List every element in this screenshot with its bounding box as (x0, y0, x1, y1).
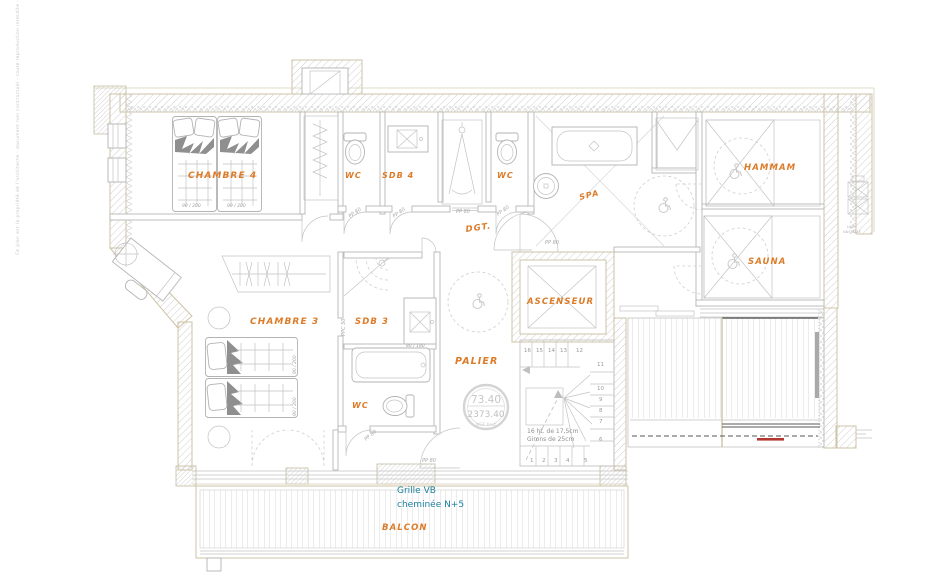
stair-number: 7 (599, 419, 603, 425)
lave-vaisselle-label-1: LAVE (847, 225, 856, 229)
bed-dim-label: 90 / 200 (292, 355, 298, 374)
door-label-pp80: PP 80 (456, 209, 470, 215)
bed-dim-label: 90 / 200 (227, 203, 246, 209)
sdb4-washbasin (388, 126, 428, 152)
door-label-ppc50: PPC 50 (341, 319, 347, 336)
annotation-line-2: cheminée N+5 (397, 499, 464, 510)
stair-number: 3 (554, 458, 558, 464)
room-label-wc3: WC (352, 401, 369, 410)
stair-number: 10 (597, 386, 604, 392)
room-label-chambre4: CHAMBRE 4 (188, 171, 257, 181)
stair-note-2: Girons de 25cm (527, 436, 574, 443)
floor-plan-page: Ce plan est la propriété de l'architecte… (0, 0, 940, 588)
room-label-sdb3: SDB 3 (355, 317, 389, 327)
room-label-balcon: BALCON (382, 523, 428, 533)
lave-vaisselle-label-2: VAISSELLE (843, 230, 861, 234)
toilet-wc3 (383, 395, 414, 417)
bed-dim-label: 90 / 200 (292, 397, 298, 416)
room-label-palier: PALIER (455, 356, 498, 367)
stair-number: 15 (536, 348, 543, 354)
annotation-line-1: Grille VB (397, 486, 436, 496)
stair-number: 5 (584, 458, 588, 464)
room-label-chambre3: CHAMBRE 3 (250, 317, 319, 327)
stair-number: 12 (576, 348, 583, 354)
red-marker (757, 438, 784, 441)
stair-number: 1 (530, 458, 534, 464)
spa-basin (534, 174, 559, 199)
tub-dim-label: 80 / 180 (406, 343, 425, 349)
room-label-wc2: WC (497, 171, 514, 180)
stair-number: 13 (560, 348, 567, 354)
room-label-ascenseur: ASCENSEUR (526, 297, 594, 307)
stair-note-1: 16 ht. de 17,5cm (527, 428, 579, 435)
bed-dim-label: 90 / 200 (182, 203, 201, 209)
door-label-pp80: PP 80 (422, 458, 436, 464)
stair-number: 8 (599, 408, 603, 414)
stair-number: 4 (566, 458, 570, 464)
room-label-sauna: SAUNA (748, 257, 786, 267)
stair-number: 2 (542, 458, 546, 464)
terrace-rail (815, 332, 819, 398)
door-label-pp80: PP 80 (545, 240, 559, 246)
stair-number: 11 (597, 362, 604, 368)
stair-number: 14 (548, 348, 555, 354)
stair-number: 9 (599, 397, 603, 403)
room-label-sdb4: SDB 4 (382, 171, 414, 180)
sdb3-vanity (404, 298, 436, 344)
side-note-text: Ce plan est la propriété de l'architecte… (15, 0, 20, 255)
elevation-ref: NGF brut (476, 422, 496, 428)
sdb3-bathtub: 80 / 180 (352, 343, 430, 382)
room-label-wc1: WC (345, 171, 362, 180)
toilet-wc1 (344, 133, 366, 164)
stair-number: 6 (599, 437, 603, 443)
spa-bathtub (552, 127, 637, 165)
stair-number: 16 (524, 348, 531, 354)
room-label-hammam: HAMMAM (744, 163, 796, 173)
floor-plan-canvas: Ce plan est la propriété de l'architecte… (0, 0, 940, 588)
toilet-wc2 (496, 133, 518, 164)
elevation-level: 73.40 (471, 394, 501, 406)
balcony-post (207, 558, 221, 571)
elevation-ngf: 2373.40 (467, 410, 504, 420)
